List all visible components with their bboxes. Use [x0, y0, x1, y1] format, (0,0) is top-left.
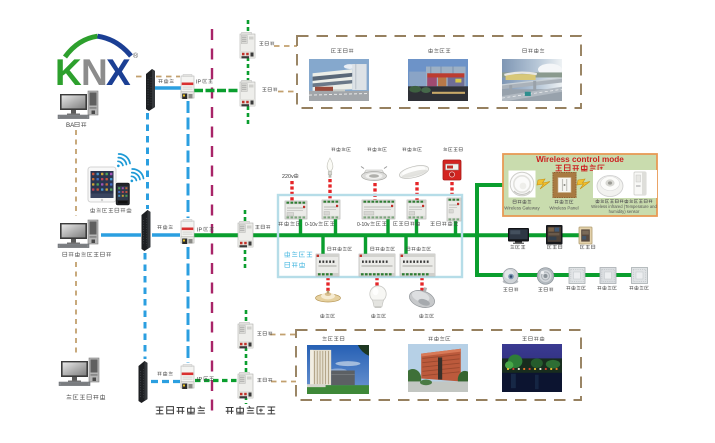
svg-text:K: K [55, 52, 82, 93]
svg-text:220v: 220v [282, 174, 294, 180]
svg-text:0-10v: 0-10v [305, 222, 318, 228]
svg-text:Wireless control mode: Wireless control mode [536, 155, 624, 164]
svg-text:®: ® [133, 52, 139, 60]
svg-text:IP: IP [197, 377, 202, 383]
svg-text:BA: BA [66, 122, 75, 129]
svg-text:Wireless Panel: Wireless Panel [549, 206, 578, 211]
svg-text:Wireless Gateway: Wireless Gateway [504, 206, 540, 211]
svg-text:0-10v: 0-10v [357, 222, 370, 228]
svg-text:IP: IP [197, 228, 202, 234]
svg-text:humidity) sensor: humidity) sensor [609, 209, 640, 214]
svg-text:X: X [106, 52, 131, 93]
svg-text:IP: IP [196, 80, 201, 86]
svg-text:N: N [81, 52, 108, 93]
